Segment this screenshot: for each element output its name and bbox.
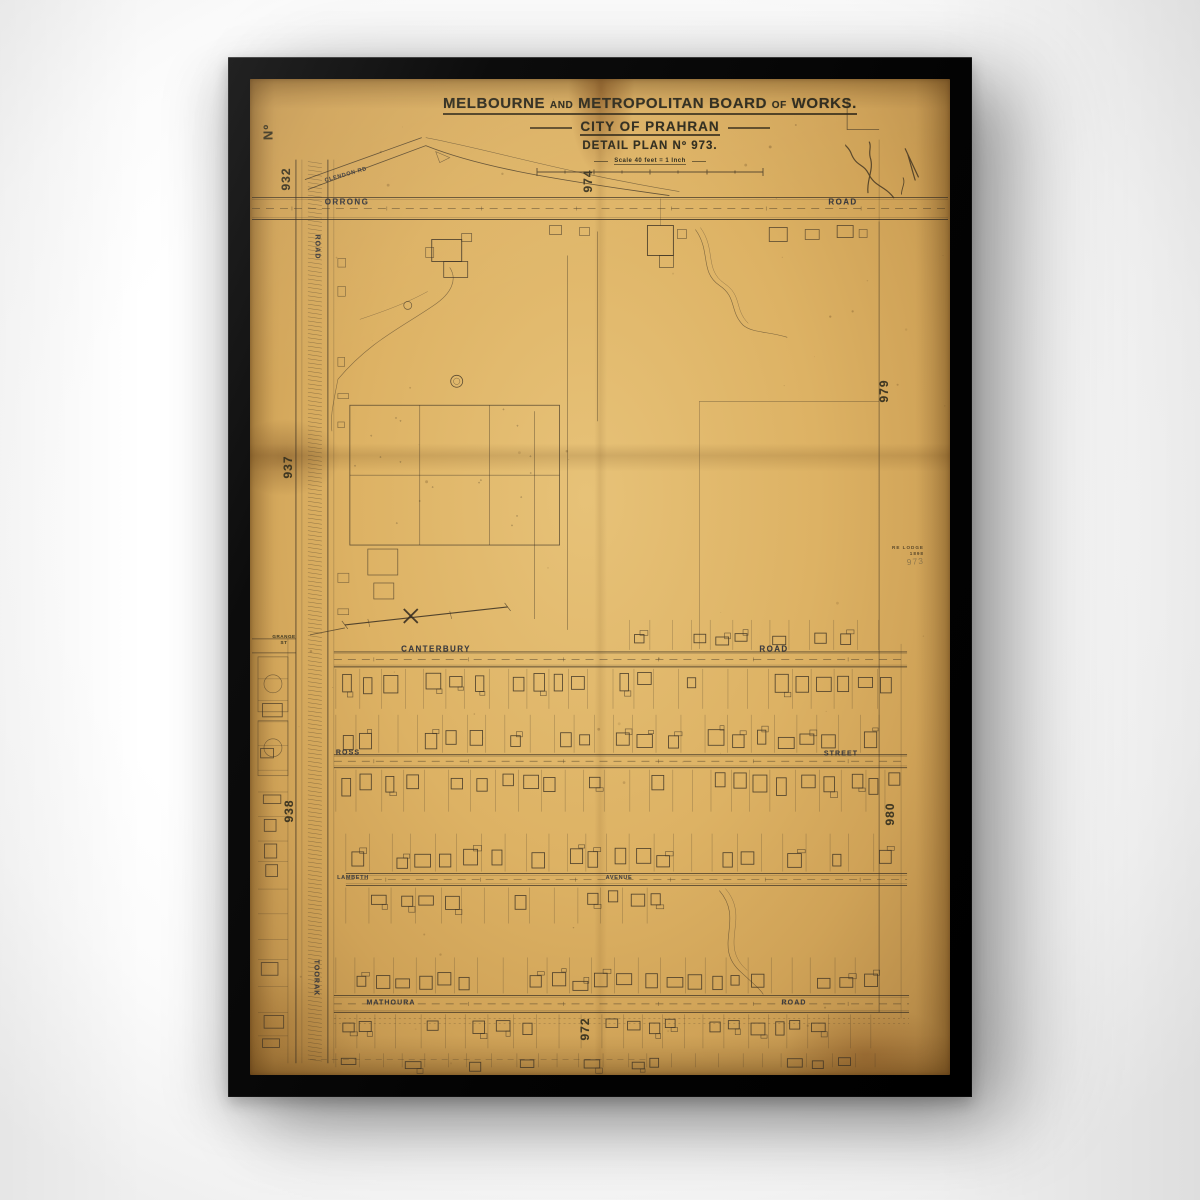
pencil-plan-number: 973 — [892, 556, 925, 570]
adjoining-plan-979: 979 — [877, 379, 891, 402]
map-paper: MELBOURNE AND METROPOLITAN BOARD OF WORK… — [250, 79, 950, 1075]
street-label-mathoura-road: ROAD — [781, 1000, 806, 1007]
scale-bar — [535, 167, 765, 177]
plan-number-line: DETAIL PLAN Nº 973. — [400, 140, 900, 152]
street-label-grange-st: GRANGEST — [272, 634, 295, 646]
street-label-toorak-road-top: ROAD — [314, 234, 321, 259]
adjoining-plan-974: 974 — [581, 169, 595, 192]
poster-frame: MELBOURNE AND METROPOLITAN BOARD OF WORK… — [228, 57, 972, 1097]
scale-text: Scale 40 feet = 1 Inch — [614, 158, 686, 165]
board-title: MELBOURNE AND METROPOLITAN BOARD OF WORK… — [443, 95, 857, 115]
subtitle-rule-right — [728, 127, 770, 129]
scale-dash-left — [594, 161, 608, 162]
street-label-orrong: ORRONG — [325, 198, 369, 207]
adjoining-plan-980: 980 — [883, 802, 897, 825]
street-label-canterbury: CANTERBURY — [401, 645, 471, 654]
street-label-avenue-name: LAMBETH — [337, 875, 369, 881]
corner-no-label: Nº — [261, 124, 276, 140]
archive-stamp: RE LODGE 1898 973 — [892, 545, 924, 568]
subtitle-rule-left — [530, 127, 572, 129]
street-label-canterbury-road: ROAD — [759, 645, 788, 654]
photo-of-framed-map: { "artwork": { "board": { "w1": "MELBOUR… — [0, 0, 1200, 1200]
adjoining-plan-938: 938 — [282, 799, 296, 822]
city-subtitle: CITY OF PRAHRAN — [580, 119, 719, 136]
street-label-ross-street: STREET — [824, 751, 858, 758]
street-label-ross: ROSS — [336, 750, 360, 757]
adjoining-plan-932: 932 — [279, 167, 293, 190]
street-label-toorak: TOORAK — [313, 960, 320, 997]
adjoining-plan-972: 972 — [578, 1017, 592, 1040]
title-block: MELBOURNE AND METROPOLITAN BOARD OF WORK… — [400, 95, 900, 177]
map-drawing — [250, 79, 950, 1075]
street-label-mathoura: MATHOURA — [366, 1000, 415, 1007]
scale-dash-right — [692, 161, 706, 162]
street-label-avenue: AVENUE — [606, 875, 633, 881]
adjoining-plan-937: 937 — [281, 455, 295, 478]
